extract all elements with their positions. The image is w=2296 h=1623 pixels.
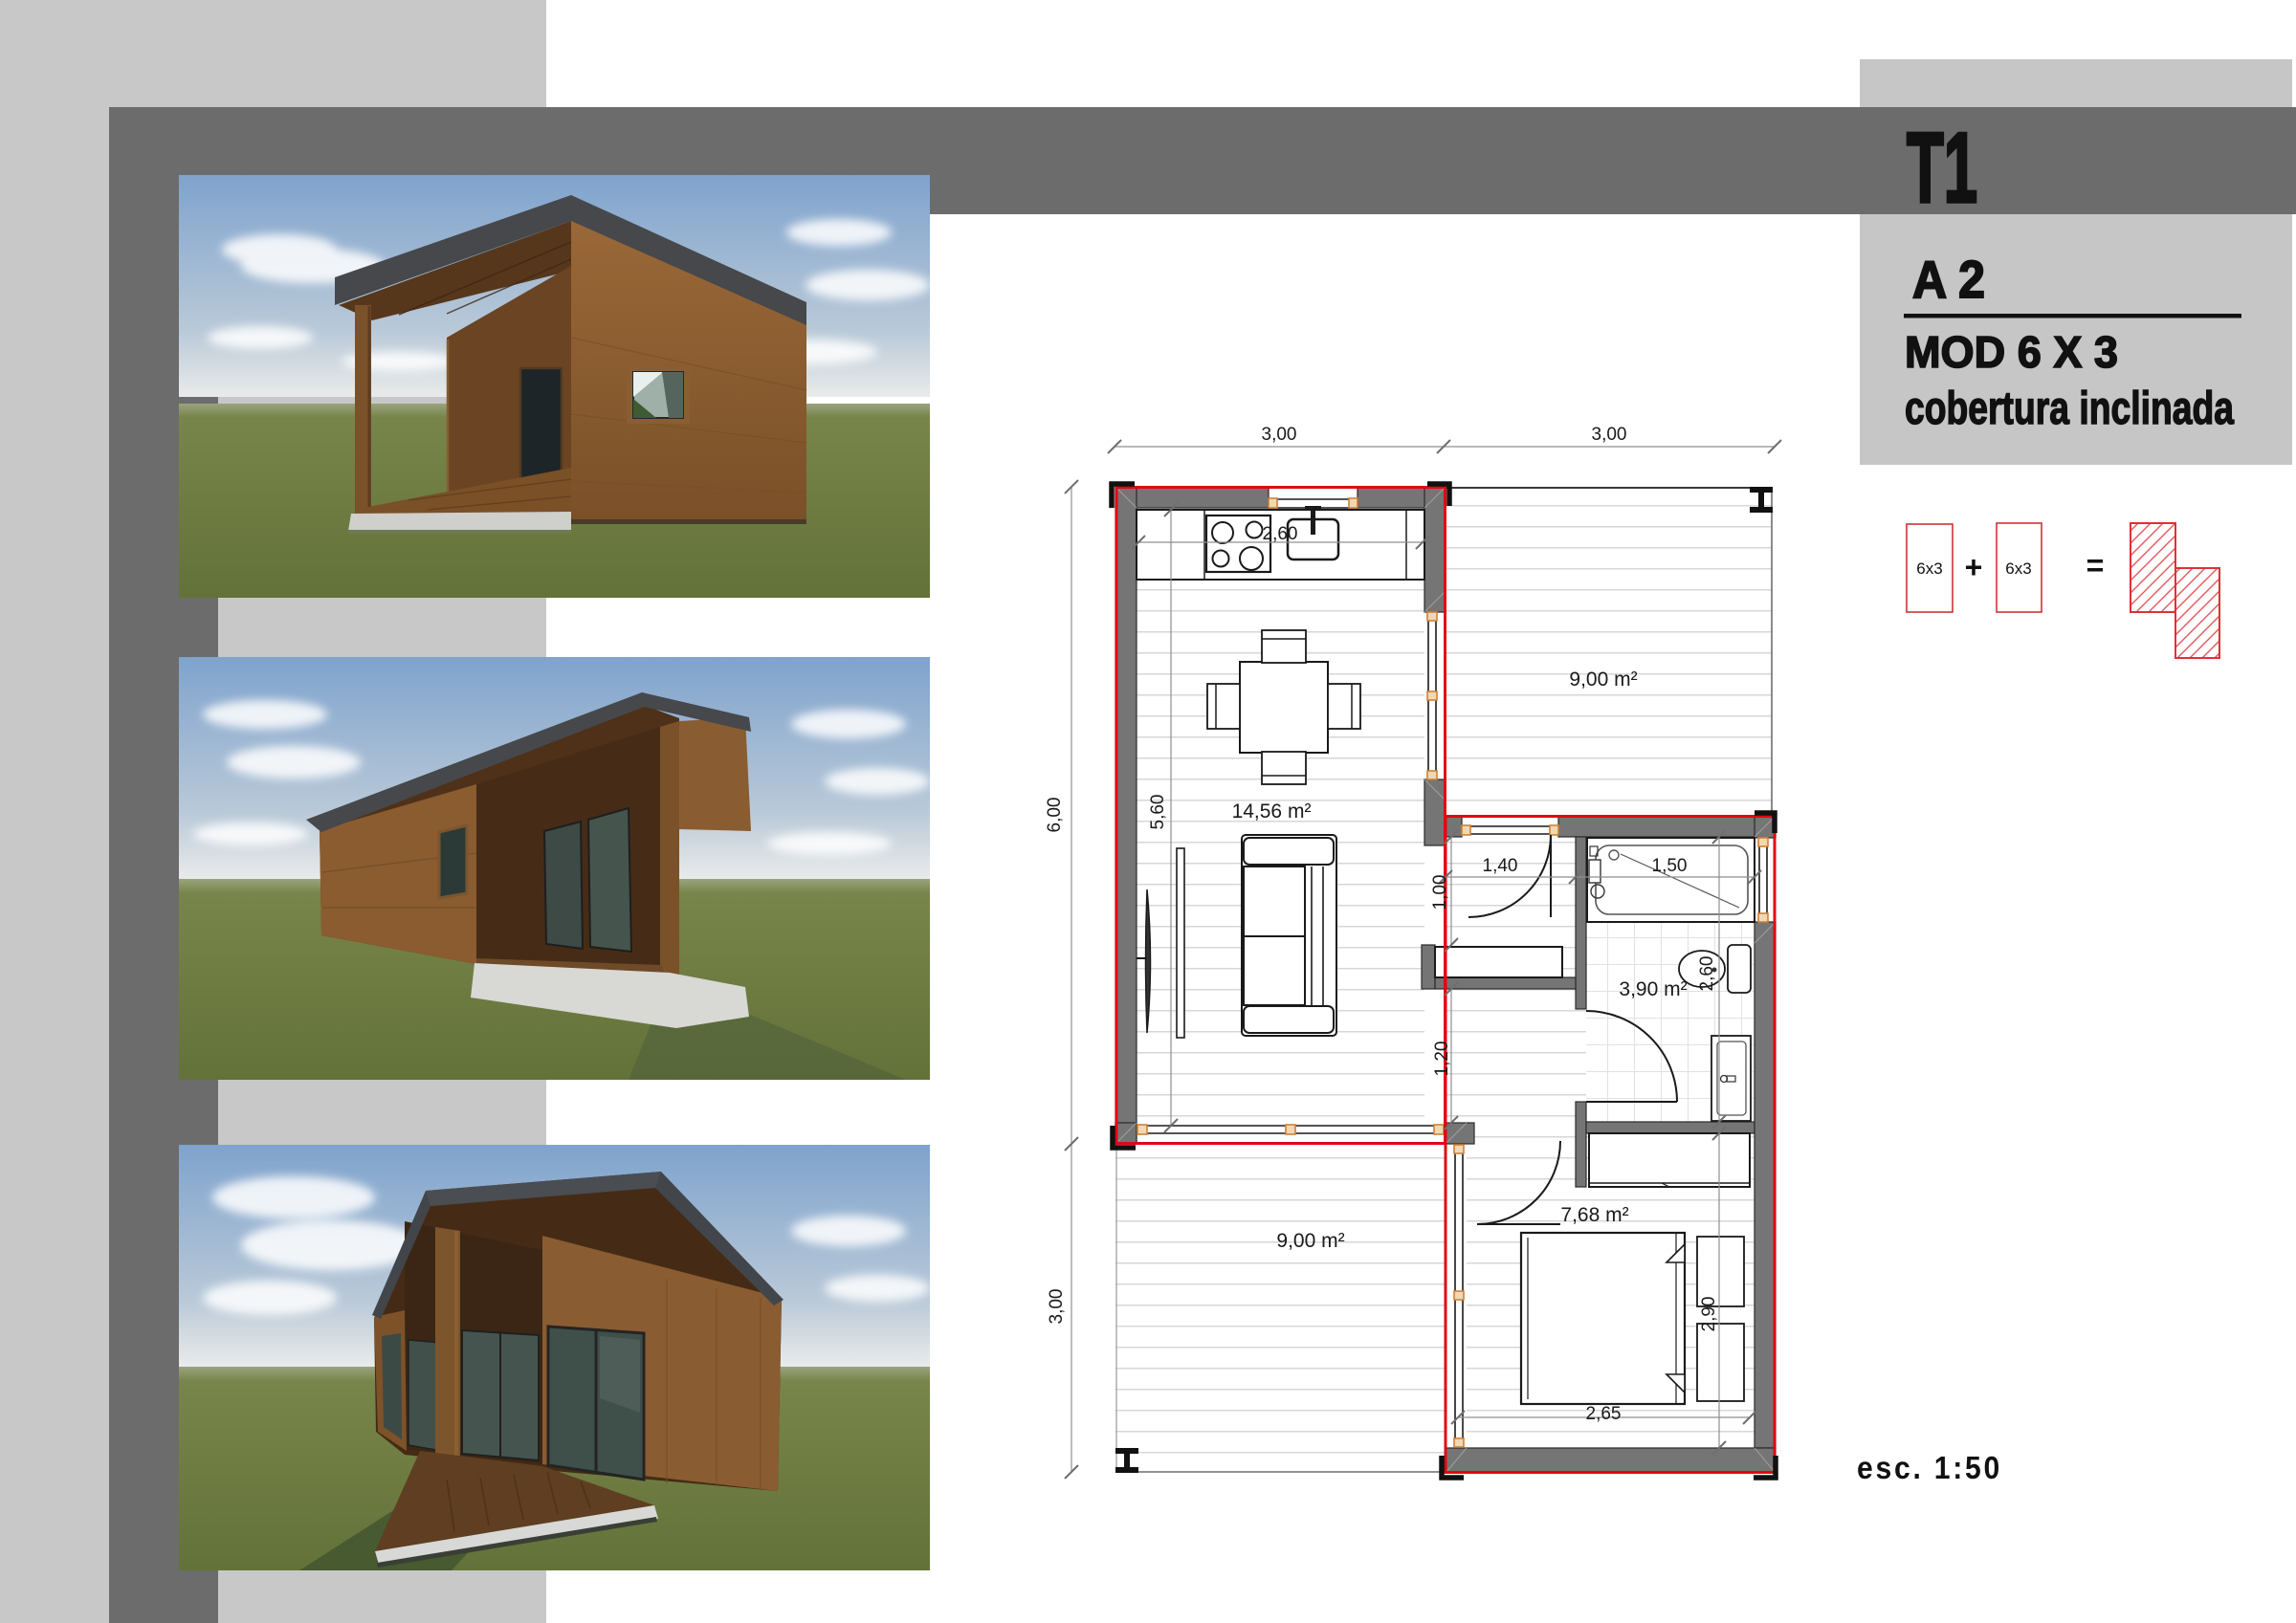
svg-text:cobertura inclinada: cobertura inclinada <box>1905 384 2234 434</box>
svg-text:+: + <box>1965 550 1983 584</box>
svg-text:1,20: 1,20 <box>1432 1042 1452 1077</box>
svg-text:14,56 m²: 14,56 m² <box>1232 801 1312 822</box>
svg-text:1,00: 1,00 <box>1430 875 1450 910</box>
svg-text:2,65: 2,65 <box>1586 1404 1622 1424</box>
svg-text:2,60: 2,60 <box>1697 956 1717 992</box>
svg-text:MOD 6 X 3: MOD 6 X 3 <box>1905 327 2118 377</box>
svg-text:9,00 m²: 9,00 m² <box>1276 1230 1344 1252</box>
svg-text:2,90: 2,90 <box>1699 1297 1719 1332</box>
svg-text:2,60: 2,60 <box>1263 524 1298 544</box>
svg-text:9,00 m²: 9,00 m² <box>1569 669 1637 691</box>
svg-text:6,00: 6,00 <box>1045 798 1065 833</box>
svg-text:6x3: 6x3 <box>2005 559 2031 578</box>
svg-text:3,90 m²: 3,90 m² <box>1619 978 1687 1000</box>
svg-text:T1: T1 <box>1907 113 1977 224</box>
svg-text:7,68 m²: 7,68 m² <box>1560 1204 1628 1226</box>
svg-text:6x3: 6x3 <box>1916 559 1942 578</box>
svg-text:3,00: 3,00 <box>1592 425 1627 445</box>
svg-text:1,40: 1,40 <box>1483 856 1518 876</box>
svg-text:A 2: A 2 <box>1912 250 1985 309</box>
svg-text:=: = <box>2086 548 2105 582</box>
svg-text:3,00: 3,00 <box>1262 425 1297 445</box>
svg-text:5,60: 5,60 <box>1148 795 1168 830</box>
svg-text:3,00: 3,00 <box>1047 1289 1067 1325</box>
svg-text:1,50: 1,50 <box>1652 856 1688 876</box>
svg-text:esc. 1:50: esc. 1:50 <box>1857 1450 2002 1485</box>
